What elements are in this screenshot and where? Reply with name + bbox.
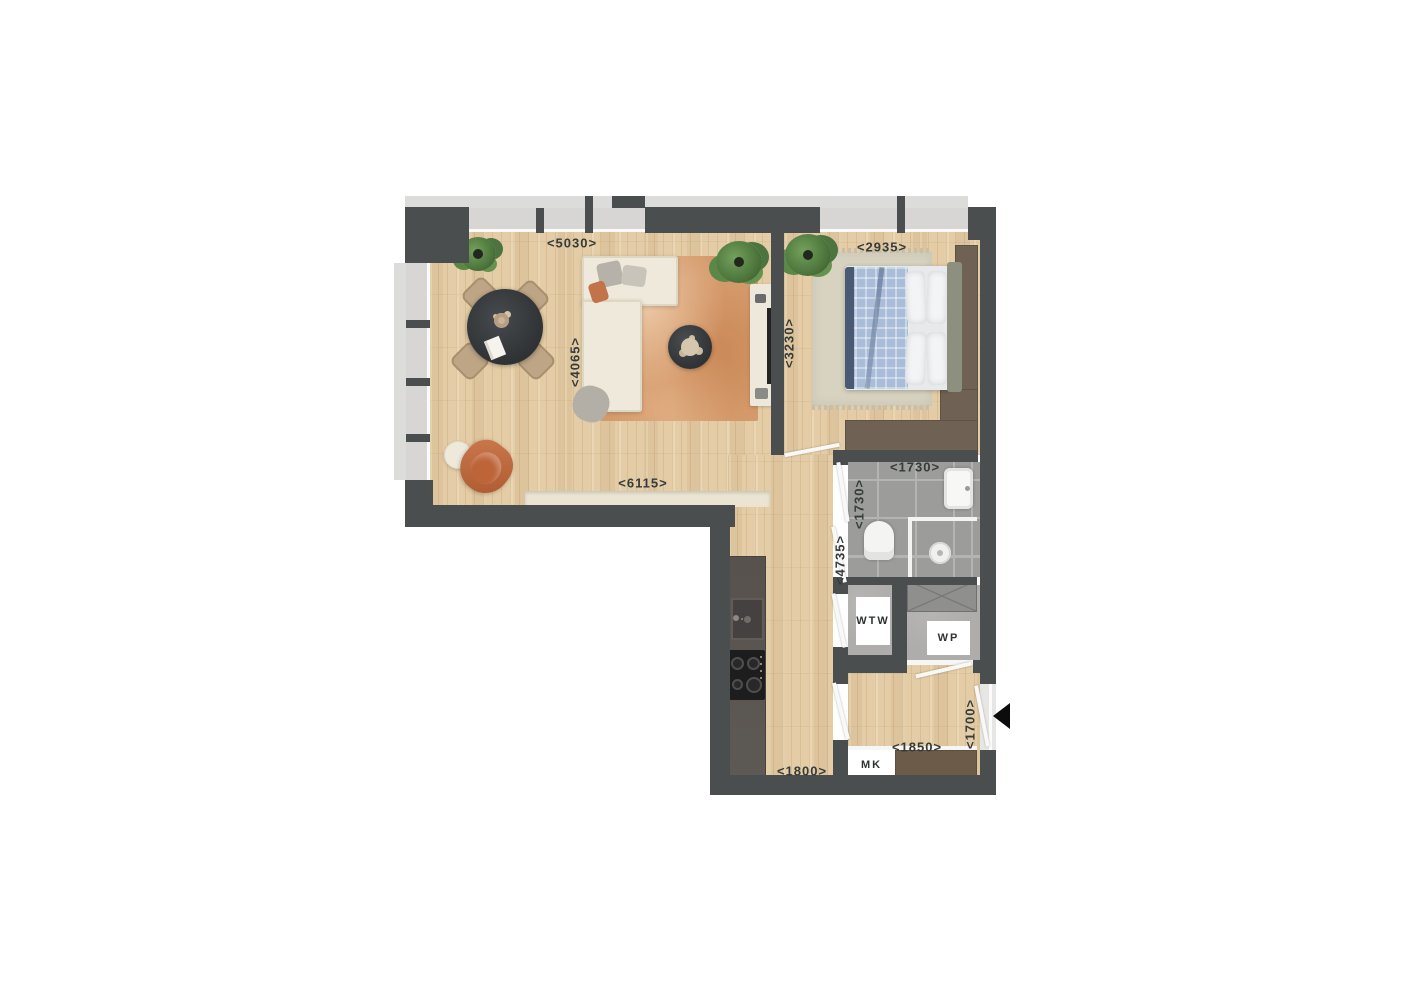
dimension-label: <1730> (890, 460, 940, 475)
window-mullion (406, 378, 430, 386)
window-mullion (897, 196, 905, 233)
dimension-label: <1850> (892, 740, 942, 755)
window-mullion (406, 320, 430, 328)
wall-wtw-wp (892, 585, 907, 660)
dimension-label: <2935> (857, 240, 907, 255)
coffee-table-plant (681, 338, 699, 356)
wall-wtw-bottom (848, 655, 907, 673)
dimension-label: <5030> (547, 236, 597, 251)
dimension-label: <4735> (833, 535, 848, 585)
bedroom-rug-fringe-bottom (812, 405, 932, 410)
wall-wing-bottom (710, 775, 996, 795)
dimension-label: <3230> (782, 318, 797, 368)
wp-label: WP (938, 632, 960, 644)
burner (747, 657, 760, 670)
window-bedroom-top (820, 208, 968, 229)
window-living-left (406, 263, 427, 480)
shower-screen-side (908, 517, 912, 578)
console (755, 388, 768, 399)
wall-corner-top-left (405, 207, 469, 263)
wall-bathroom-bottom (833, 577, 977, 585)
bed-pillow (905, 271, 928, 325)
speaker (755, 294, 766, 303)
wtw-closet-door (831, 593, 846, 648)
plant (785, 234, 831, 276)
wall-right-lower (980, 750, 996, 780)
window-mullion (536, 208, 544, 233)
dimension-label: <1800> (777, 764, 827, 779)
window-mullion (585, 196, 593, 233)
sink-drain (744, 616, 751, 623)
dimension-label: <6115> (618, 476, 667, 491)
mk-label: MK (861, 759, 882, 771)
window-living-left-glass (427, 263, 430, 480)
sofa-pillow-grey-2 (621, 264, 648, 287)
shower-drain-dot (937, 550, 943, 556)
toilet (864, 521, 894, 560)
dimension-label: <1730> (852, 479, 867, 529)
bed-headboard (947, 262, 962, 392)
wall-wp-stub (973, 660, 980, 673)
window-mullion (406, 434, 430, 442)
exterior-sill-left (394, 263, 406, 480)
entrance-arrow-icon (993, 703, 1010, 729)
cooktop (728, 650, 765, 700)
wall-left-lower (405, 480, 433, 507)
shower-screen-top (908, 517, 977, 521)
bed-duvet-edge (845, 267, 854, 389)
basin-faucet (965, 486, 970, 491)
wall-hall-tech (833, 647, 848, 684)
wp-unit: WP (927, 621, 970, 655)
bed-pillow (926, 332, 948, 386)
window-bedroom-top-glass (820, 229, 968, 232)
wtw-label: WTW (856, 615, 889, 627)
burner (731, 657, 744, 670)
wtw-unit: WTW (856, 597, 890, 645)
wall-right-upper (980, 233, 996, 684)
dining-table-vase (494, 313, 509, 328)
bed-pillow (905, 332, 928, 386)
exterior-pier-top (612, 196, 645, 208)
wall-wing-left (710, 527, 730, 780)
wall-hall-entry-lower (833, 740, 848, 780)
wall-bottom-living (405, 505, 735, 527)
bed-pillow (926, 271, 948, 325)
plant (716, 241, 762, 283)
floor-plan: WTW WP MK <5030> <2935> <4065> <3230> (0, 0, 1414, 1000)
dimension-label: <4065> (568, 337, 583, 387)
cooktop-controls (760, 656, 762, 680)
wall-top-pier (645, 207, 820, 233)
window-living-top (469, 208, 645, 229)
window-living-top-glass (469, 229, 645, 232)
wardrobe (940, 389, 978, 422)
entrance-opening-line (989, 684, 992, 750)
kitchen-faucet (733, 615, 739, 621)
burner (732, 679, 743, 690)
dimension-label: <1700> (963, 699, 978, 749)
